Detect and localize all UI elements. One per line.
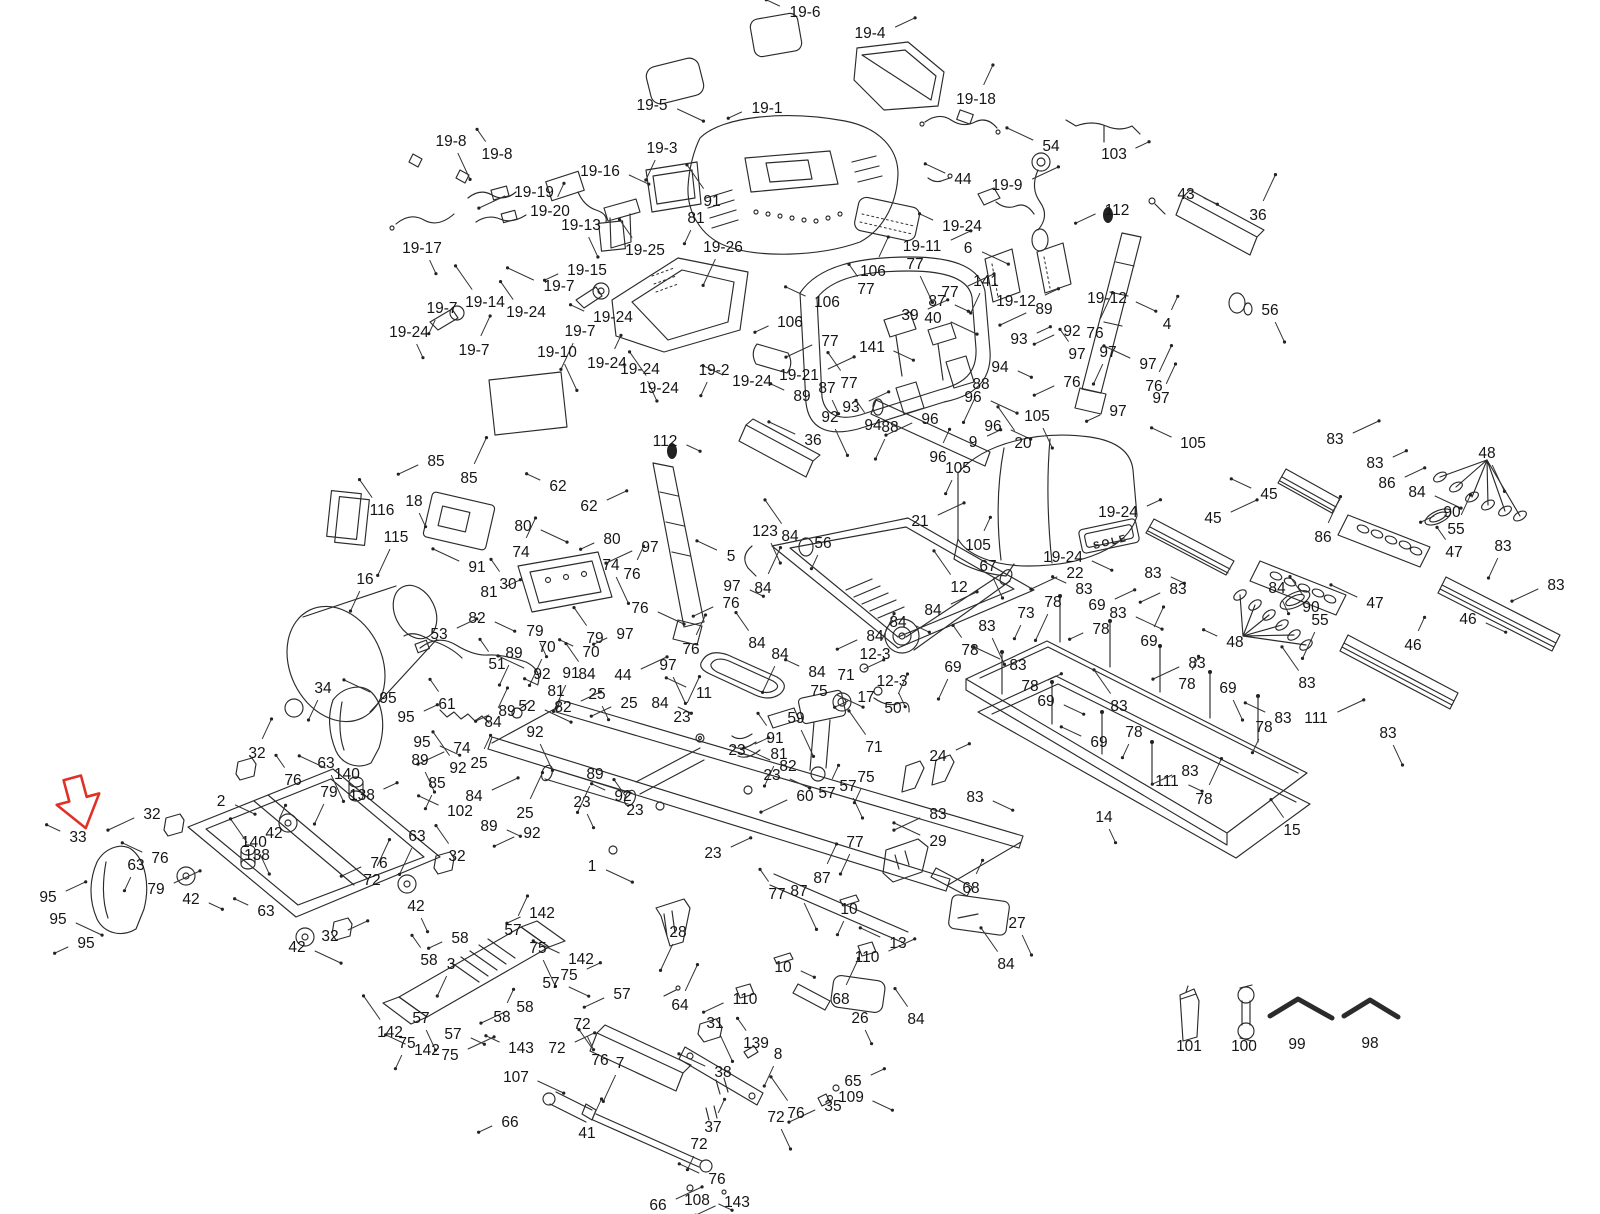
svg-text:123: 123: [752, 523, 778, 540]
svg-text:83: 83: [1274, 710, 1291, 727]
svg-text:19-14: 19-14: [465, 294, 505, 311]
svg-text:83: 83: [1075, 581, 1092, 598]
part-label-63: 63: [123, 857, 145, 892]
svg-text:95: 95: [413, 734, 430, 751]
part-label-115: 115: [376, 529, 408, 577]
part-label-91: 91: [431, 547, 485, 576]
part-label-95: 95: [397, 703, 439, 726]
part-label-3: 3: [436, 956, 456, 998]
part-label-36: 36: [1249, 173, 1277, 224]
svg-text:69: 69: [944, 659, 961, 676]
part-label-76: 76: [682, 613, 707, 658]
svg-text:19-7: 19-7: [426, 300, 457, 317]
svg-text:57: 57: [412, 1010, 429, 1027]
svg-text:69: 69: [1219, 680, 1236, 697]
svg-text:10: 10: [840, 901, 858, 918]
part-label-92: 92: [821, 409, 849, 457]
svg-text:80: 80: [514, 518, 532, 535]
part-label-110: 110: [855, 937, 917, 966]
svg-text:48: 48: [1226, 634, 1243, 651]
svg-text:1: 1: [588, 858, 597, 875]
svg-text:78: 78: [1255, 719, 1272, 736]
part-label-42: 42: [265, 804, 287, 842]
part-label-77: 77: [758, 868, 785, 903]
part-label-79: 79: [572, 606, 603, 647]
part-label-32: 32: [321, 919, 369, 945]
part-label-19-24: 19-24: [499, 280, 546, 321]
svg-text:57: 57: [839, 778, 856, 795]
svg-text:55: 55: [1311, 612, 1328, 629]
part-label-65: 65: [844, 1067, 886, 1090]
part-label-32: 32: [434, 824, 465, 865]
svg-text:78: 78: [1178, 676, 1195, 693]
part-label-83: 83: [1139, 581, 1187, 604]
svg-text:72: 72: [363, 872, 380, 889]
svg-text:32: 32: [143, 806, 160, 823]
part-label-82: 82: [468, 610, 516, 633]
exploded-parts-diagram: 19-619-419-519-119-1819-819-819-35410319…: [0, 0, 1600, 1214]
part-label-1: 1: [588, 858, 634, 884]
part-label-4: 4: [1163, 295, 1180, 333]
svg-text:143: 143: [508, 1040, 534, 1057]
part-label-83: 83: [1326, 419, 1380, 448]
svg-text:39: 39: [901, 307, 918, 324]
part-label-78: 78: [1034, 594, 1062, 642]
svg-text:86: 86: [1378, 475, 1395, 492]
part-label-84: 84: [465, 776, 519, 805]
svg-text:33: 33: [69, 829, 86, 846]
part-label-109: 109: [838, 1089, 894, 1112]
part-label-83: 83: [966, 789, 1014, 812]
part-label-85: 85: [460, 436, 488, 487]
part-label-77: 77: [784, 333, 838, 359]
part-label-54: 54: [1005, 126, 1060, 155]
svg-text:19-21: 19-21: [779, 367, 819, 384]
part-label-83: 83: [1109, 605, 1163, 631]
svg-text:2: 2: [217, 793, 226, 810]
svg-text:72: 72: [767, 1109, 784, 1126]
part-label-142: 142: [362, 994, 403, 1041]
svg-text:23: 23: [763, 767, 780, 784]
part-label-34: 34: [307, 680, 332, 722]
svg-text:77: 77: [768, 886, 785, 903]
part-label-83: 83: [1487, 538, 1512, 580]
svg-text:61: 61: [438, 696, 455, 713]
svg-text:116: 116: [370, 502, 395, 519]
svg-text:42: 42: [182, 891, 199, 908]
svg-text:74: 74: [453, 740, 471, 757]
svg-text:48: 48: [1478, 445, 1495, 462]
part-label-19-4: 19-4: [854, 16, 916, 42]
svg-text:19-8: 19-8: [481, 146, 512, 163]
svg-text:21: 21: [911, 513, 928, 530]
part-label-94: 94: [991, 359, 1033, 379]
svg-text:89: 89: [586, 766, 603, 783]
part-label-2: 2: [217, 793, 257, 816]
part-label-76: 76: [678, 1162, 726, 1188]
svg-text:76: 76: [787, 1105, 804, 1122]
part-label-92: 92: [493, 825, 541, 848]
part-label-123: 123: [752, 523, 782, 565]
part-label-57: 57: [504, 894, 529, 939]
part-label-84: 84: [979, 926, 1015, 973]
svg-text:84: 84: [889, 614, 907, 631]
svg-text:19-24: 19-24: [593, 309, 633, 326]
part-label-19-24: 19-24: [1098, 498, 1162, 521]
svg-text:78: 78: [1195, 791, 1212, 808]
svg-text:19-13: 19-13: [561, 217, 601, 234]
part-label-19-24: 19-24: [918, 212, 982, 235]
svg-text:77: 77: [846, 834, 863, 851]
svg-text:85: 85: [427, 453, 444, 470]
part-label-38: 38: [677, 1052, 731, 1081]
svg-text:83: 83: [1144, 565, 1161, 582]
svg-text:84: 84: [484, 714, 502, 731]
svg-text:72: 72: [573, 1016, 590, 1033]
svg-text:84: 84: [651, 695, 669, 712]
svg-text:76: 76: [708, 1171, 725, 1188]
svg-text:19-7: 19-7: [543, 278, 574, 295]
svg-text:69: 69: [1037, 693, 1054, 710]
part-label-19-16: 19-16: [580, 163, 650, 186]
svg-text:102: 102: [447, 803, 473, 820]
svg-text:84: 84: [1408, 484, 1426, 501]
part-label-19-3: 19-3: [644, 140, 677, 182]
svg-text:105: 105: [945, 460, 971, 477]
svg-text:68: 68: [832, 991, 849, 1008]
svg-text:11: 11: [696, 685, 712, 702]
svg-text:83: 83: [1379, 725, 1396, 742]
svg-text:77: 77: [821, 333, 838, 350]
part-label-12: 12: [932, 549, 967, 596]
svg-text:93: 93: [1010, 331, 1027, 348]
svg-text:107: 107: [503, 1069, 529, 1086]
svg-text:38: 38: [714, 1064, 731, 1081]
part-label-19-18: 19-18: [956, 63, 996, 108]
svg-text:89: 89: [1035, 301, 1052, 318]
svg-text:140: 140: [334, 766, 360, 783]
svg-text:70: 70: [538, 639, 556, 656]
svg-text:95: 95: [49, 911, 66, 928]
part-label-56: 56: [810, 535, 832, 570]
svg-text:83: 83: [1109, 605, 1126, 622]
svg-text:50: 50: [884, 700, 902, 717]
svg-text:12-3: 12-3: [876, 673, 907, 690]
svg-text:19-24: 19-24: [1043, 549, 1083, 566]
part-label-68: 68: [832, 957, 860, 1008]
part-label-14: 14: [1095, 809, 1117, 844]
part-label-26: 26: [851, 1010, 873, 1045]
part-label-33: 33: [45, 823, 87, 846]
svg-text:18: 18: [405, 493, 422, 510]
svg-text:100: 100: [1231, 1038, 1257, 1055]
part-label-42: 42: [407, 898, 429, 933]
svg-text:89: 89: [793, 388, 810, 405]
part-label-112: 112: [1074, 202, 1129, 225]
svg-text:58: 58: [420, 952, 437, 969]
svg-text:66: 66: [501, 1114, 518, 1131]
svg-text:76: 76: [591, 1052, 608, 1069]
svg-text:106: 106: [814, 294, 840, 311]
svg-text:62: 62: [549, 478, 566, 495]
svg-text:19-6: 19-6: [789, 4, 820, 21]
part-label-78: 78: [1068, 621, 1110, 641]
part-label-73: 73: [1013, 605, 1035, 640]
svg-text:62: 62: [580, 498, 597, 515]
part-label-19-7: 19-7: [506, 266, 575, 295]
svg-text:84: 84: [578, 666, 596, 683]
svg-text:19-10: 19-10: [537, 344, 577, 361]
svg-text:84: 84: [997, 956, 1015, 973]
svg-text:78: 78: [1125, 724, 1142, 741]
svg-text:19-24: 19-24: [620, 361, 660, 378]
svg-text:81: 81: [687, 210, 704, 227]
svg-text:25: 25: [516, 805, 533, 822]
part-label-78: 78: [1195, 757, 1223, 808]
part-label-19-1: 19-1: [727, 100, 783, 120]
svg-text:84: 84: [781, 528, 799, 545]
svg-text:45: 45: [1204, 510, 1221, 527]
svg-text:75: 75: [441, 1047, 458, 1064]
svg-text:28: 28: [669, 924, 686, 941]
svg-text:57: 57: [444, 1026, 461, 1043]
part-label-76: 76: [274, 754, 301, 789]
part-label-15: 15: [1269, 798, 1300, 839]
svg-text:36: 36: [804, 432, 821, 449]
svg-text:69: 69: [1140, 633, 1157, 650]
svg-text:24: 24: [929, 748, 947, 765]
part-label-83: 83: [1379, 725, 1404, 767]
svg-text:19-4: 19-4: [854, 25, 885, 42]
part-label-141: 141: [859, 339, 915, 362]
part-label-78: 78: [1251, 719, 1273, 754]
part-label-19-7: 19-7: [458, 314, 491, 359]
part-label-16: 16: [349, 571, 374, 613]
svg-text:108: 108: [684, 1192, 710, 1209]
svg-text:30: 30: [499, 576, 517, 593]
svg-text:8: 8: [774, 1046, 783, 1063]
part-label-78: 78: [951, 624, 978, 659]
svg-text:76: 76: [151, 850, 168, 867]
svg-text:85: 85: [428, 775, 445, 792]
svg-text:19-1: 19-1: [751, 100, 782, 117]
part-label-87: 87: [813, 842, 838, 887]
svg-text:78: 78: [1044, 594, 1061, 611]
svg-text:97: 97: [1099, 344, 1116, 361]
highlight-arrow: [51, 772, 107, 834]
svg-text:81: 81: [480, 584, 497, 601]
svg-text:59: 59: [787, 710, 804, 727]
part-label-19-25: 19-25: [618, 218, 665, 259]
svg-text:83: 83: [966, 789, 983, 806]
svg-text:12-3: 12-3: [859, 646, 890, 663]
svg-text:84: 84: [808, 664, 826, 681]
part-label-138: 138: [349, 781, 399, 804]
part-label-83: 83: [1092, 668, 1127, 715]
svg-text:19-25: 19-25: [625, 242, 665, 259]
part-label-19-17: 19-17: [402, 240, 442, 275]
svg-text:19-5: 19-5: [636, 97, 667, 114]
svg-text:45: 45: [1260, 486, 1277, 503]
svg-text:83: 83: [1494, 538, 1511, 555]
svg-text:25: 25: [588, 686, 605, 703]
svg-text:96: 96: [921, 411, 938, 428]
part-label-83: 83: [978, 618, 1006, 666]
svg-text:19-24: 19-24: [732, 373, 772, 390]
svg-text:29: 29: [929, 833, 946, 850]
svg-text:3: 3: [447, 956, 456, 973]
svg-text:101: 101: [1176, 1038, 1202, 1055]
part-label-139: 139: [736, 1017, 769, 1052]
part-label-141: 141: [969, 273, 999, 315]
part-label-99: 99: [1288, 1036, 1305, 1053]
part-label-48: 48: [1202, 628, 1244, 651]
part-label-92: 92: [590, 782, 632, 805]
part-label-105: 105: [965, 516, 992, 554]
svg-text:27: 27: [1008, 915, 1025, 932]
svg-text:41: 41: [578, 1125, 595, 1142]
part-label-112: 112: [653, 433, 702, 453]
svg-text:69: 69: [1090, 734, 1107, 751]
svg-text:19-19: 19-19: [514, 184, 554, 201]
svg-text:84: 84: [1268, 580, 1286, 597]
part-label-97: 97: [1085, 403, 1127, 423]
part-label-28: 28: [659, 924, 687, 972]
svg-text:19-24: 19-24: [1098, 504, 1138, 521]
svg-text:83: 83: [929, 806, 946, 823]
svg-text:14: 14: [1095, 809, 1113, 826]
svg-text:46: 46: [1459, 611, 1476, 628]
part-label-68: 68: [962, 859, 984, 897]
part-label-42: 42: [182, 891, 224, 911]
part-label-25: 25: [516, 771, 544, 822]
svg-text:82: 82: [554, 699, 571, 716]
svg-text:79: 79: [320, 784, 337, 801]
part-label-62: 62: [525, 472, 567, 495]
svg-text:94: 94: [864, 417, 882, 434]
svg-text:63: 63: [317, 755, 334, 772]
svg-text:76: 76: [623, 566, 640, 583]
svg-text:26: 26: [851, 1010, 868, 1027]
svg-text:57: 57: [613, 986, 630, 1003]
svg-text:19-7: 19-7: [564, 323, 595, 340]
svg-text:37: 37: [704, 1119, 721, 1136]
part-label-95: 95: [53, 935, 95, 955]
svg-text:95: 95: [379, 690, 396, 707]
svg-text:40: 40: [924, 310, 942, 327]
svg-text:57: 57: [504, 922, 521, 939]
svg-text:97: 97: [1152, 390, 1169, 407]
part-label-87: 87: [790, 883, 818, 931]
svg-text:84: 84: [465, 788, 483, 805]
svg-text:19-24: 19-24: [639, 380, 679, 397]
svg-text:36: 36: [1249, 207, 1266, 224]
svg-text:19-9: 19-9: [991, 177, 1022, 194]
svg-text:63: 63: [257, 903, 274, 920]
svg-text:112: 112: [653, 433, 678, 450]
svg-text:19-8: 19-8: [435, 133, 466, 150]
svg-text:75: 75: [857, 769, 874, 786]
part-label-58: 58: [410, 934, 437, 969]
part-label-116: 116: [358, 478, 394, 519]
svg-text:97: 97: [616, 626, 633, 643]
svg-text:95: 95: [397, 709, 414, 726]
svg-text:32: 32: [448, 848, 465, 865]
svg-text:19-24: 19-24: [389, 324, 429, 341]
svg-text:83: 83: [978, 618, 995, 635]
part-label-84: 84: [893, 987, 925, 1028]
part-label-57: 57: [583, 986, 631, 1009]
svg-text:19-12: 19-12: [996, 293, 1036, 310]
svg-text:84: 84: [907, 1011, 925, 1028]
svg-text:12: 12: [950, 579, 967, 596]
svg-text:58: 58: [493, 1009, 510, 1026]
svg-text:19-17: 19-17: [402, 240, 442, 257]
part-label-71: 71: [847, 709, 882, 756]
svg-text:23: 23: [673, 709, 690, 726]
svg-text:75: 75: [560, 967, 577, 984]
part-label-105: 105: [1150, 426, 1206, 452]
svg-text:79: 79: [147, 881, 164, 898]
part-label-111: 111: [1304, 698, 1365, 727]
svg-text:58: 58: [451, 930, 468, 947]
svg-text:23: 23: [704, 845, 721, 862]
svg-text:106: 106: [860, 263, 886, 280]
part-label-100: 100: [1231, 1038, 1257, 1055]
svg-text:110: 110: [733, 991, 758, 1008]
part-label-58: 58: [493, 988, 515, 1026]
svg-text:58: 58: [516, 999, 533, 1016]
svg-text:19-24: 19-24: [942, 218, 982, 235]
svg-text:89: 89: [480, 818, 497, 835]
svg-text:115: 115: [384, 529, 409, 546]
svg-text:19-7: 19-7: [458, 342, 489, 359]
part-label-78: 78: [1121, 724, 1143, 759]
part-label-46: 46: [1404, 616, 1426, 654]
svg-text:95: 95: [77, 935, 94, 952]
part-label-62: 62: [580, 489, 628, 515]
part-label-19-10: 19-10: [537, 344, 578, 392]
svg-text:138: 138: [349, 787, 375, 804]
svg-text:78: 78: [1092, 621, 1109, 638]
part-label-18: 18: [405, 493, 427, 528]
svg-text:103: 103: [1101, 146, 1127, 163]
part-label-57: 57: [444, 1026, 486, 1046]
svg-text:83: 83: [1326, 431, 1343, 448]
svg-text:106: 106: [777, 314, 803, 331]
svg-text:96: 96: [984, 418, 1001, 435]
svg-text:79: 79: [526, 623, 543, 640]
svg-text:85: 85: [460, 470, 477, 487]
svg-text:80: 80: [603, 531, 621, 548]
part-label-106: 106: [753, 314, 803, 334]
svg-text:91: 91: [703, 193, 720, 210]
svg-text:84: 84: [866, 628, 884, 645]
diagram-line-art: [91, 12, 1560, 1194]
part-label-95: 95: [342, 678, 396, 707]
svg-text:22: 22: [1066, 565, 1083, 582]
svg-text:SOLE: SOLE: [1092, 533, 1129, 552]
svg-text:92: 92: [449, 760, 466, 777]
svg-text:92: 92: [533, 666, 550, 683]
part-label-84: 84: [734, 611, 766, 652]
part-label-5: 5: [695, 539, 735, 565]
svg-text:73: 73: [1017, 605, 1034, 622]
part-label-36: 36: [767, 420, 821, 449]
part-label-76: 76: [623, 545, 645, 583]
svg-text:98: 98: [1361, 1035, 1378, 1052]
part-label-55: 55: [1301, 612, 1329, 660]
